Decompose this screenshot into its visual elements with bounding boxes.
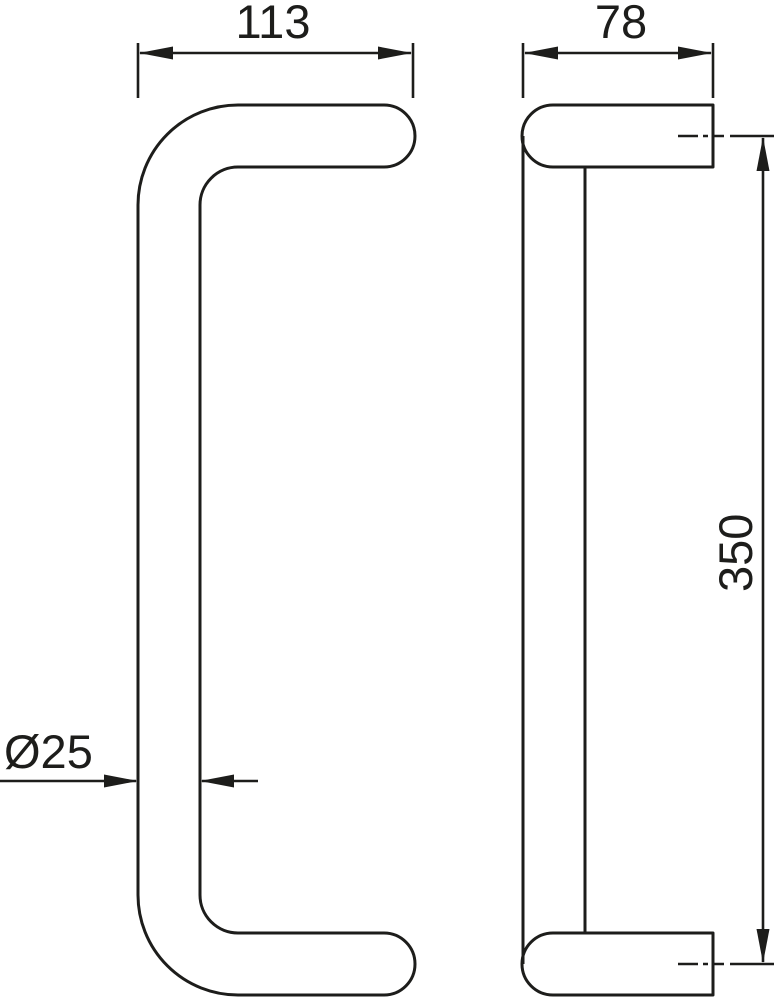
technical-drawing: 113 78 Ø25 350: [0, 0, 774, 1000]
drawing-svg: 113 78 Ø25 350: [0, 0, 774, 1000]
side-view: [138, 105, 415, 995]
dimension-length: 350: [709, 136, 774, 964]
dimension-grip-width: 113: [138, 0, 413, 98]
arrowhead-right: [678, 47, 712, 60]
arrowhead-right: [200, 775, 234, 788]
arrowhead-left: [524, 47, 558, 60]
front-view: [522, 105, 724, 995]
dimension-label-350: 350: [709, 514, 762, 592]
arrowhead-left: [139, 47, 173, 60]
dimension-label-113: 113: [236, 0, 311, 48]
arrowhead-left: [104, 775, 138, 788]
arrowhead-top: [757, 137, 770, 171]
dimension-tube-diameter: Ø25: [0, 725, 258, 788]
dimension-label-diameter: Ø25: [4, 725, 93, 778]
handle-outline: [138, 105, 415, 995]
arrowhead-right: [378, 47, 412, 60]
arrowhead-bottom: [757, 929, 770, 963]
dimension-label-78: 78: [595, 0, 647, 48]
dimension-depth: 78: [523, 0, 713, 98]
